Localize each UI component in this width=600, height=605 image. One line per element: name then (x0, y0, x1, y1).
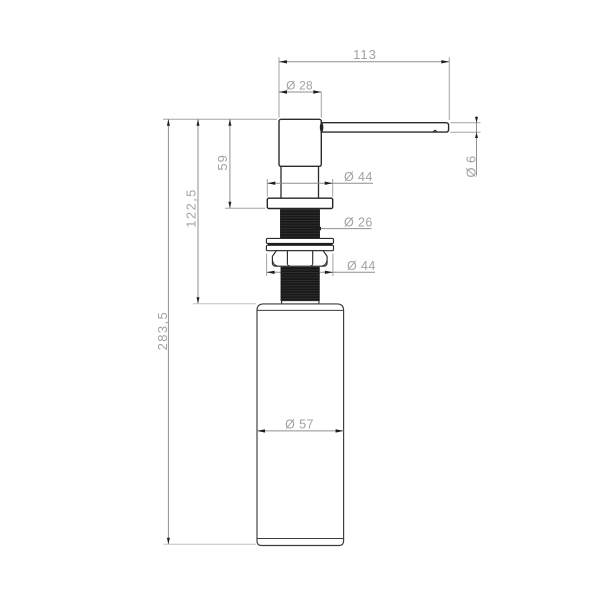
svg-text:122,5: 122,5 (184, 188, 199, 228)
svg-text:Ø 6: Ø 6 (464, 155, 479, 177)
svg-text:59: 59 (215, 154, 230, 170)
svg-text:Ø 28: Ø 28 (286, 78, 313, 92)
svg-text:Ø 44: Ø 44 (347, 259, 376, 273)
svg-text:Ø 57: Ø 57 (285, 417, 314, 431)
svg-text:Ø 44: Ø 44 (344, 170, 373, 184)
svg-text:283,5: 283,5 (155, 311, 170, 351)
svg-text:Ø 26: Ø 26 (344, 216, 373, 230)
svg-text:113: 113 (353, 47, 377, 62)
